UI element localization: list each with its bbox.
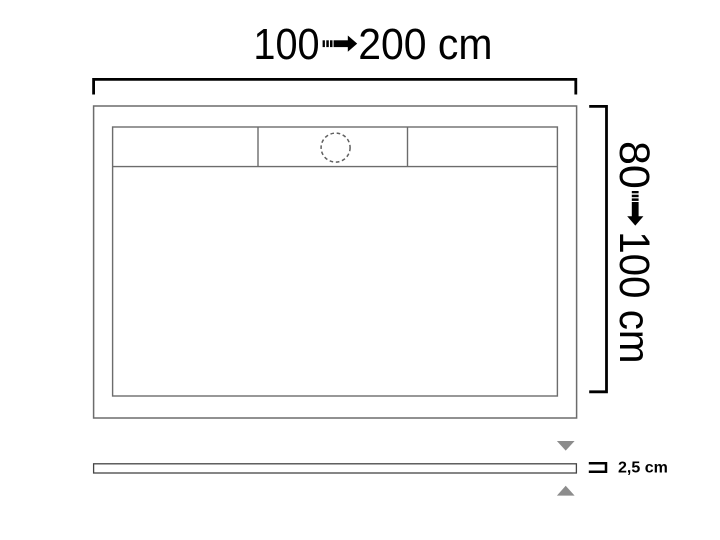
svg-text:2,5 cm: 2,5 cm [618,459,668,476]
svg-text:100: 100 [253,21,319,69]
svg-text:100 cm: 100 cm [610,231,658,363]
svg-text:200 cm: 200 cm [358,21,492,69]
svg-text:80: 80 [610,141,658,189]
